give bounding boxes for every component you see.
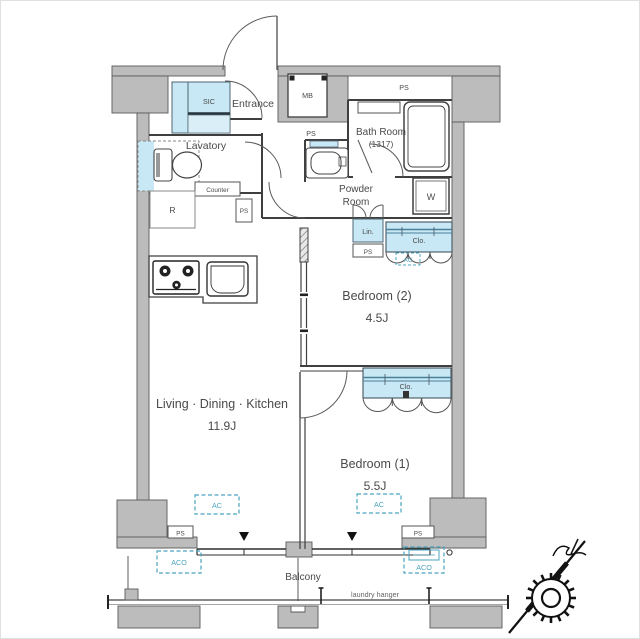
room-label-bedroom2-size: 4.5J — [366, 311, 389, 325]
label-ps-bottom-left: PS — [176, 531, 184, 538]
south-windows — [197, 532, 430, 555]
room-label-powder-1: Powder — [339, 184, 374, 195]
room-label-bedroom1-size: 5.5J — [364, 479, 387, 493]
label-ps-bath: PS — [399, 83, 409, 92]
washbasin-fixture — [306, 141, 348, 178]
label-ps-hall: PS — [306, 129, 316, 138]
label-balcony: Balcony — [285, 572, 321, 583]
balcony-structure — [108, 556, 508, 628]
room-label-bath-size: (1317) — [369, 139, 394, 149]
label-closet-bedroom1: Clo. — [400, 382, 413, 391]
label-refrigerator: R — [169, 205, 175, 215]
stove-fixture — [153, 261, 199, 294]
label-meter-box: MB — [302, 91, 313, 100]
floor-plan-canvas: Entrance SIC Lavatory Counter R MB PS PS… — [0, 0, 640, 639]
label-sic: SIC — [203, 97, 215, 106]
sliding-partition — [299, 228, 309, 366]
room-label-entrance: Entrance — [232, 98, 274, 110]
floor-plan-image: Entrance SIC Lavatory Counter R MB PS PS… — [0, 0, 640, 639]
north-compass-icon — [509, 539, 586, 633]
room-label-bedroom2: Bedroom (2) — [342, 289, 411, 303]
room-label-bedroom1: Bedroom (1) — [340, 457, 409, 471]
label-counter: Counter — [206, 187, 228, 194]
label-ps-bottom-right: PS — [414, 531, 422, 538]
label-ac-bedroom1: AC — [374, 500, 384, 509]
room-label-powder-2: Room — [343, 197, 370, 208]
label-closet-bedroom2: Clo. — [413, 236, 426, 245]
room-label-ldk: Living · Dining · Kitchen — [156, 397, 288, 411]
ldk-bedroom1-wall — [300, 418, 305, 549]
label-ac-ldk: AC — [212, 501, 222, 510]
label-ac-bedroom2-closet: AC — [404, 257, 413, 264]
label-laundry-hanger: laundry hanger — [351, 590, 400, 599]
room-label-bath: Bath Room — [356, 127, 406, 138]
label-ps-linen: PS — [364, 249, 372, 256]
sink-fixture — [207, 262, 248, 296]
label-washer: W — [427, 192, 436, 202]
label-linen: Lin. — [362, 227, 374, 236]
room-label-ldk-size: 11.9J — [208, 419, 236, 433]
room-label-lavatory: Lavatory — [186, 140, 227, 152]
label-ps-corridor: PS — [240, 208, 248, 215]
label-aco-right: ACO — [416, 563, 432, 572]
label-aco-left: ACO — [171, 558, 187, 567]
shoe-closet-sic — [172, 82, 230, 133]
